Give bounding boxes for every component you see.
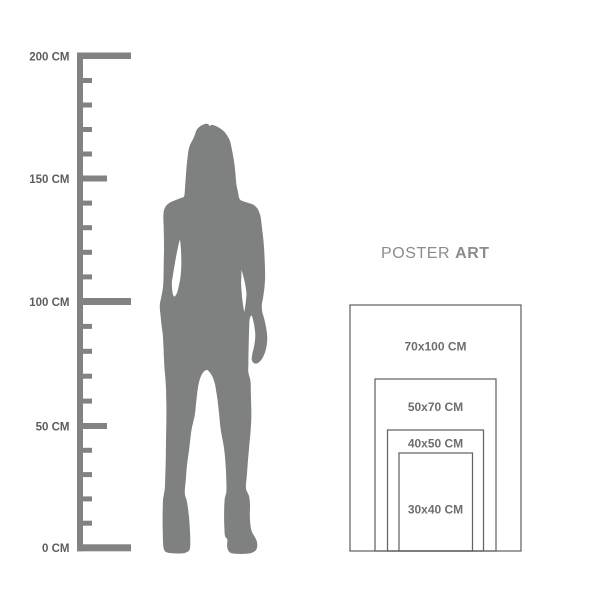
- svg-text:200 CM: 200 CM: [29, 52, 69, 64]
- svg-text:POSTER ART: POSTER ART: [381, 245, 490, 262]
- svg-text:50x70 CM: 50x70 CM: [408, 400, 463, 414]
- svg-text:30x40 CM: 30x40 CM: [408, 503, 463, 517]
- svg-text:70x100 CM: 70x100 CM: [404, 340, 466, 354]
- svg-text:0 CM: 0 CM: [42, 543, 69, 555]
- svg-text:100 CM: 100 CM: [29, 297, 69, 309]
- svg-text:40x50 CM: 40x50 CM: [408, 437, 463, 451]
- svg-text:150 CM: 150 CM: [29, 174, 69, 186]
- svg-text:50 CM: 50 CM: [36, 422, 70, 434]
